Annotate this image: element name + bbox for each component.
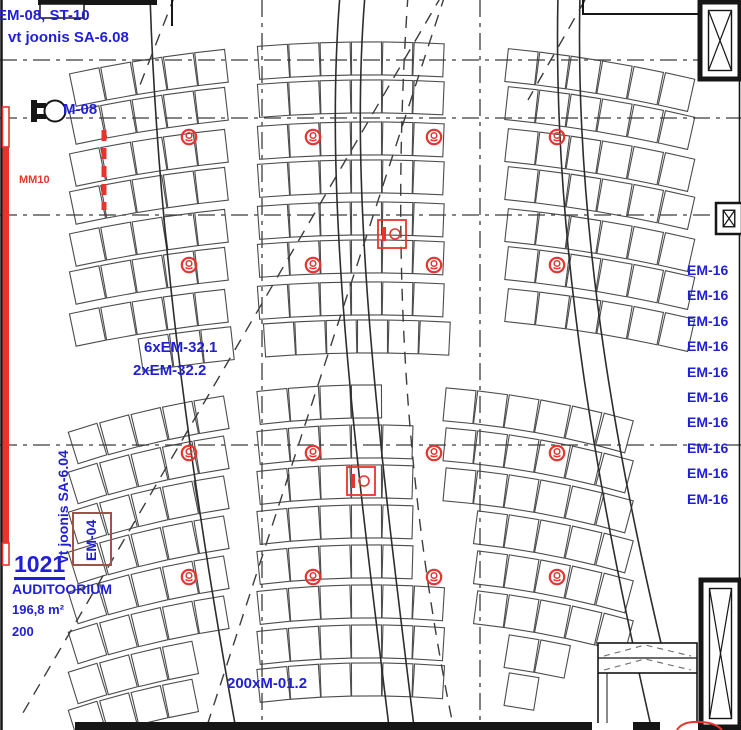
seat: [596, 493, 633, 533]
seat: [163, 53, 197, 90]
seat: [163, 561, 199, 599]
seat: [565, 486, 602, 525]
seat: [351, 160, 381, 193]
label-6xem321: 6xEM-32.1: [144, 340, 217, 355]
seat: [326, 320, 357, 354]
seat: [565, 526, 602, 565]
seat: [132, 255, 167, 292]
label-em04: EM-04: [83, 520, 99, 561]
seat: [628, 226, 664, 264]
seat: [535, 640, 571, 678]
seat: [288, 466, 320, 501]
label-em16: EM-16: [687, 466, 728, 480]
seat: [443, 468, 476, 504]
seat: [505, 289, 538, 325]
seat: [628, 306, 664, 344]
seat: [132, 137, 167, 174]
seat: [351, 663, 381, 696]
seat: [288, 506, 320, 541]
seat: [101, 62, 136, 100]
room-area: 196,8 m²: [12, 603, 64, 616]
seat: [382, 160, 413, 194]
seat: [132, 297, 167, 334]
seat: [163, 293, 197, 330]
seat: [131, 568, 168, 607]
seat: [351, 80, 381, 113]
seat: [101, 260, 136, 298]
seat: [566, 296, 601, 333]
shaft-bottom-right: [701, 580, 740, 727]
seat: [474, 431, 508, 468]
seat: [351, 505, 381, 538]
seat: [194, 436, 229, 474]
seat: [535, 600, 571, 638]
seat: [504, 395, 539, 432]
seat: [320, 505, 351, 539]
seat: [382, 80, 413, 114]
label-m08: M-08: [63, 102, 97, 117]
label-2xem322: 2xEM-32.2: [133, 363, 206, 378]
seat: [505, 49, 538, 85]
seat: [69, 228, 105, 266]
seat: [565, 566, 602, 605]
seat: [132, 57, 167, 94]
seat: [163, 679, 199, 717]
seat: [565, 406, 602, 445]
seat: [597, 141, 632, 179]
seat: [535, 212, 569, 249]
seat: [131, 528, 168, 567]
seat: [505, 167, 538, 203]
shaft-mid-right: [716, 203, 741, 234]
label-ref-sa608: vt joonis SA-6.08: [8, 30, 129, 45]
seat: [658, 153, 694, 192]
shaft-top-right: [700, 2, 740, 79]
seat: [289, 203, 321, 237]
seat: [163, 91, 197, 128]
seat: [320, 545, 351, 579]
label-ref-sa604: vt joonis SA-6.04: [56, 450, 70, 563]
seat: [131, 608, 168, 647]
seat: [628, 264, 664, 302]
seat: [320, 240, 351, 274]
seat: [566, 94, 601, 131]
seat: [382, 545, 413, 579]
seat: [565, 606, 602, 645]
seat: [351, 42, 381, 75]
seat: [289, 283, 321, 317]
seat: [351, 545, 381, 578]
seat: [195, 129, 229, 165]
seat: [535, 520, 571, 558]
seat: [351, 585, 381, 618]
seat: [628, 184, 664, 222]
seat: [474, 551, 508, 588]
label-em16: EM-16: [687, 492, 728, 506]
label-em08-st10: EM-08, ST-10: [0, 8, 90, 23]
seat: [195, 49, 229, 85]
seat: [504, 515, 539, 552]
speaker-icon: [427, 570, 441, 584]
seat: [195, 167, 229, 203]
seat: [597, 259, 632, 297]
seat: [658, 191, 694, 230]
seat: [131, 408, 168, 447]
seat: [628, 66, 664, 104]
auditorium-plan-canvas: EM-08, ST-10 vt joonis SA-6.08 M-08 MM10…: [0, 0, 741, 730]
seat: [163, 213, 197, 250]
seat: [295, 321, 326, 355]
seat: [69, 148, 105, 186]
label-em16: EM-16: [687, 339, 728, 353]
label-em16: EM-16: [687, 314, 728, 328]
seat: [288, 386, 320, 421]
seat: [419, 321, 450, 355]
seat: [163, 481, 199, 519]
em04-junction-box: EM-04: [72, 512, 112, 566]
seat: [132, 217, 167, 254]
label-em16: EM-16: [687, 390, 728, 404]
seat: [535, 400, 571, 438]
seat: [351, 240, 381, 273]
seat: [382, 425, 413, 459]
seat: [320, 585, 351, 619]
seat: [101, 222, 136, 260]
seat: [131, 686, 168, 725]
seat: [320, 202, 351, 236]
seat: [288, 586, 320, 621]
seat: [628, 146, 664, 184]
floor-plan-drawing: [0, 0, 741, 730]
seat: [566, 56, 601, 93]
seat: [413, 161, 444, 195]
seat: [289, 81, 321, 115]
seat: [597, 221, 632, 259]
seat: [132, 95, 167, 132]
seat: [194, 516, 229, 554]
label-200xm012: 200xM-01.2: [227, 676, 307, 691]
seat: [566, 174, 601, 211]
seat: [535, 90, 569, 127]
seat: [351, 465, 381, 498]
seat: [288, 626, 320, 661]
seat: [413, 203, 444, 237]
seat: [320, 385, 351, 419]
seat: [504, 475, 539, 512]
seat: [289, 161, 321, 195]
seat: [382, 282, 413, 316]
seat: [351, 122, 381, 155]
seat: [443, 428, 476, 464]
seat: [163, 133, 197, 170]
room-name: AUDITOORIUM: [12, 582, 112, 596]
seat: [597, 179, 632, 217]
room-number: 1021: [14, 553, 65, 580]
seat: [443, 388, 476, 424]
seat: [131, 448, 168, 487]
seat: [163, 641, 199, 679]
seat: [504, 435, 539, 472]
seat: [474, 391, 508, 428]
seat: [413, 283, 444, 317]
seat: [505, 129, 538, 165]
label-em16: EM-16: [687, 441, 728, 455]
seat: [357, 320, 387, 353]
seat: [474, 511, 508, 548]
label-em16: EM-16: [687, 365, 728, 379]
seat: [131, 488, 168, 527]
seat: [504, 635, 539, 672]
seat: [131, 648, 168, 687]
room-capacity: 200: [12, 625, 34, 638]
seat: [596, 573, 633, 613]
speaker-icon: [427, 446, 441, 460]
label-em16: EM-16: [687, 263, 728, 277]
seat: [597, 61, 632, 99]
seat: [351, 202, 381, 235]
seat: [658, 111, 694, 150]
seat: [658, 73, 694, 112]
seat: [474, 591, 508, 628]
seat: [195, 289, 229, 325]
label-em16: EM-16: [687, 288, 728, 302]
seat: [382, 240, 413, 274]
seat: [504, 555, 539, 592]
seat: [382, 625, 413, 659]
seat: [320, 425, 351, 459]
bottom-wall: [75, 722, 741, 730]
seat: [535, 480, 571, 518]
seat: [263, 322, 295, 357]
seat: [163, 521, 199, 559]
seat: [320, 663, 351, 697]
label-mm10: MM10: [19, 175, 50, 186]
seat: [163, 171, 197, 208]
seat: [413, 664, 445, 699]
seat: [504, 673, 539, 710]
seat: [413, 586, 445, 621]
seat-rows: [68, 42, 694, 730]
seat: [194, 596, 229, 634]
seat: [504, 595, 539, 632]
seat: [505, 209, 538, 245]
seat: [628, 104, 664, 142]
seat: [69, 308, 105, 346]
label-em16: EM-16: [687, 415, 728, 429]
seat: [69, 186, 105, 224]
seat: [474, 471, 508, 508]
seat: [566, 216, 601, 253]
seat: [382, 505, 413, 539]
seat: [194, 396, 229, 434]
seat: [413, 81, 444, 115]
seat: [505, 247, 538, 283]
m08-motor-icon: [31, 100, 66, 122]
seat: [163, 601, 199, 639]
seat: [535, 292, 569, 329]
seat: [69, 266, 105, 304]
seat: [101, 302, 136, 340]
seat: [320, 625, 351, 659]
seat: [195, 247, 229, 283]
